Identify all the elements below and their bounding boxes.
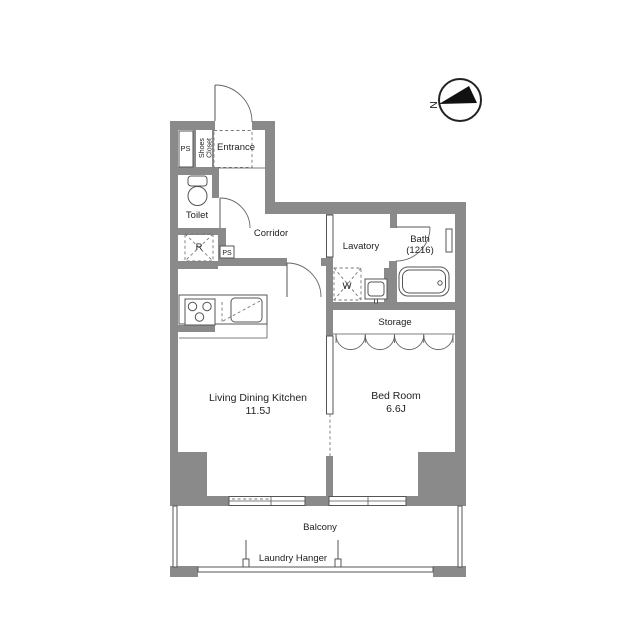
label-toilet: Toilet [186, 210, 209, 221]
floor-plan-page: N PS Shoes Closet Entrance Toilet R PS C… [0, 0, 640, 640]
laundry-pole-right [335, 540, 341, 567]
balcony-rail-bottom [198, 567, 433, 572]
label-balcony: Balcony [303, 522, 337, 533]
laundry-pole-left [243, 540, 249, 567]
bathtub [399, 267, 449, 296]
compass-north-label: N [428, 101, 440, 109]
label-bedroom-name: Bed Room [371, 390, 421, 402]
label-shoes-closet-line2: Closet [207, 138, 214, 158]
balcony-rail-left [173, 506, 177, 567]
label-ldk-size: 11.5J [246, 405, 271, 417]
lavatory-sliding-door [327, 215, 334, 257]
ldk-window [229, 497, 305, 506]
label-ps-small: PS [222, 250, 232, 257]
label-laundry-hanger: Laundry Hanger [259, 553, 327, 564]
label-refrigerator: R [196, 242, 203, 253]
label-lavatory: Lavatory [343, 241, 380, 252]
lavatory-sink [365, 279, 387, 303]
balcony-rail-right [458, 506, 462, 567]
label-corridor: Corridor [254, 228, 288, 239]
entrance-door [215, 85, 252, 122]
label-washer: W [343, 281, 352, 292]
label-bedroom-size: 6.6J [386, 403, 406, 415]
toilet-fixture [188, 176, 207, 206]
corridor-ldk-door [287, 263, 321, 297]
label-storage: Storage [378, 317, 411, 328]
label-bath-line2: (1216) [406, 245, 433, 256]
label-shoes-closet-line1: Shoes [199, 138, 206, 158]
label-bath-line1: Bath [410, 234, 430, 245]
bedroom-sliding-door [327, 336, 334, 456]
walls [170, 121, 466, 577]
label-ps-top: PS [180, 144, 190, 153]
label-ldk-name: Living Dining Kitchen [209, 392, 307, 404]
label-entrance: Entrance [217, 142, 255, 153]
kitchen-sink [231, 298, 262, 322]
toilet-door [220, 198, 250, 228]
storage-curtain [333, 334, 455, 350]
floor-plan-svg: N PS Shoes Closet Entrance Toilet R PS C… [0, 0, 640, 640]
compass: N [428, 79, 481, 121]
bath-counter [446, 229, 452, 252]
bedroom-window [329, 497, 406, 506]
